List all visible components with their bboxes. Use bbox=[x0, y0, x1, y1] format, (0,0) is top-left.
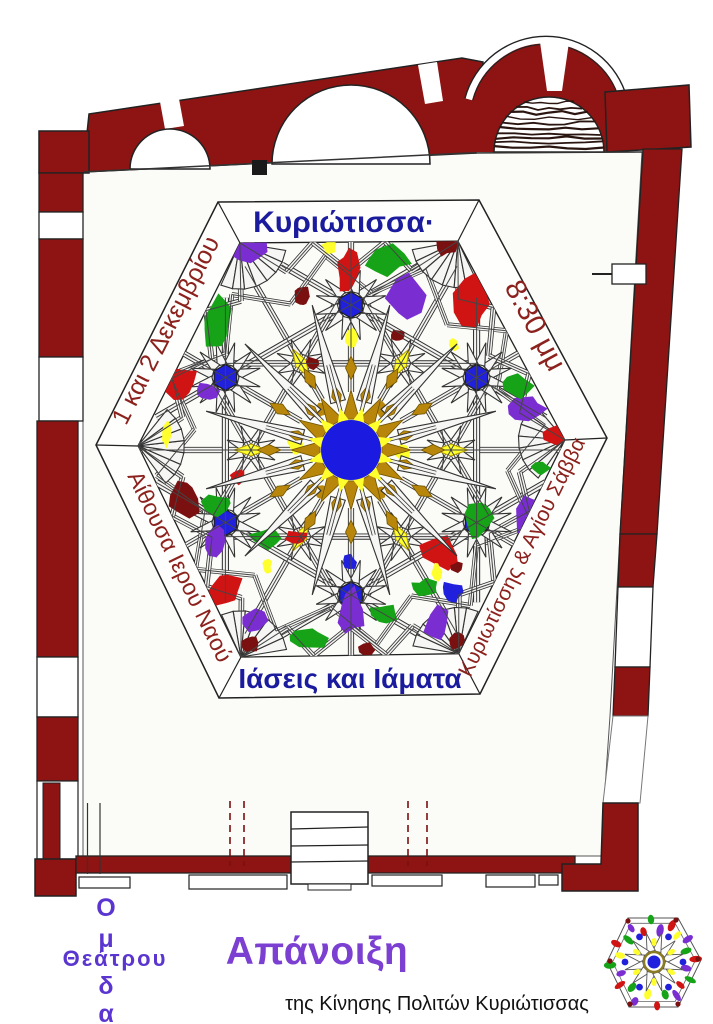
svg-text:της Κίνησης Πολιτών Κυριώτισσα: της Κίνησης Πολιτών Κυριώτισσας bbox=[285, 993, 589, 1015]
svg-text:δ: δ bbox=[98, 972, 113, 1000]
svg-text:Ιάσεις και Ιάματα: Ιάσεις και Ιάματα bbox=[238, 663, 461, 694]
svg-text:α: α bbox=[98, 1000, 114, 1024]
svg-text:Ο: Ο bbox=[96, 894, 115, 922]
svg-text:Κυριώτισσα·: Κυριώτισσα· bbox=[253, 206, 435, 239]
svg-text:Απάνοιξη: Απάνοιξη bbox=[226, 930, 408, 973]
svg-text:Θεάτρου: Θεάτρου bbox=[63, 946, 168, 971]
